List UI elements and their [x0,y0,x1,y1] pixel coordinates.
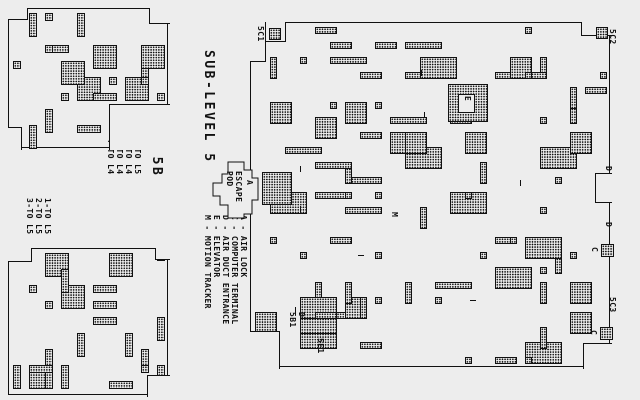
maze-block [405,132,427,154]
maze-block [555,177,562,184]
maze-block [360,132,382,139]
maze-block [435,282,472,289]
marker-computer-C1: C [590,247,599,252]
maze-block [330,237,352,244]
maze-block [570,252,577,259]
terminal-box-1 [601,244,614,257]
maze-block [45,109,53,133]
maze-block [77,125,101,133]
maze-block [375,252,382,259]
maze-block [29,365,53,373]
maze-block [345,282,352,304]
marker-motion-M: M [390,212,399,217]
marker-5C3: 5C3 [608,297,617,313]
maze-block [540,117,547,124]
maze-block [360,72,382,79]
marker-5C2: 5C2 [608,29,617,45]
maze-block [45,45,53,53]
legend-symbols: A - AIR LOCK C - COMPUTER TERMINAL D - A… [203,215,248,325]
maze-block [540,282,547,304]
maze-outline-notch [149,8,170,24]
maze-block [45,13,53,21]
maze-block [420,207,427,229]
duct-5b-maze [8,8,168,148]
duct-box-5C1 [269,28,281,40]
airlock-room [262,172,292,205]
maze-outline-notch [250,331,280,369]
maze-block [420,57,457,79]
maze-block [465,132,487,154]
maze-block [480,162,487,184]
maze-block [375,42,397,49]
maze-block [157,317,165,341]
maze-outline-notch [8,248,32,262]
maze-block [315,312,337,319]
maze-block [61,61,85,85]
marker-duct-D-1: D [604,166,613,171]
maze-block [510,237,517,244]
terminal-box-2 [600,327,613,340]
maze-block [13,61,21,69]
maze-block [375,297,382,304]
maze-block [93,93,117,101]
duct-box-5C2 [596,27,608,39]
maze-block [375,102,382,109]
maze-block [525,357,532,364]
maze-block [13,365,21,389]
maze-block [93,317,117,325]
maze-block [315,27,337,34]
maze-block [93,45,117,69]
door-tick [421,70,422,76]
page-title-sublevel-5: SUB-LEVEL 5 [201,50,215,164]
maze-block [270,237,277,244]
maze-outline-notch [583,343,612,369]
maze-block [29,13,37,37]
maze-block [345,207,382,214]
maze-block [157,93,165,101]
maze-outline-notch [595,173,612,203]
door-tick [424,112,425,118]
escape-pod-label: ESCAPE POD [225,171,243,202]
maze-block [345,102,367,124]
door-tick [300,166,301,172]
door-tick [358,255,364,256]
maze-block [570,132,592,154]
maze-block [61,93,69,101]
duct-5c-maze [8,248,168,395]
maze-block [300,252,307,259]
maze-block [405,42,442,49]
maze-block [61,269,69,293]
door-tick [295,307,296,313]
maze-block [525,237,562,259]
maze-block [435,297,442,304]
maze-block [405,282,412,304]
maze-block [109,381,133,389]
maze-outline-notch [8,8,28,20]
marker-computer-C2: C [589,330,598,335]
marker-airlock-A: A [245,180,254,185]
maze-block [570,282,592,304]
maze-block [125,333,133,357]
maze-block [315,162,352,169]
maze-block [360,297,367,319]
maze-block [109,77,117,85]
maze-block [93,301,117,309]
maze-block [390,117,427,124]
marker-duct-D-2: D [604,222,613,227]
maze-block [585,87,607,94]
door-tick [520,180,521,186]
maze-block [570,87,577,109]
door-tick [300,206,301,212]
marker-5C1: 5C1 [256,26,265,42]
maze-block [315,117,337,139]
maze-block [270,57,277,79]
maze-block [141,77,149,85]
marker-elevator-E: E [463,96,472,101]
maze-block [141,45,165,69]
maze-outline-notch [8,127,22,150]
maze-block [109,253,133,277]
marker-duct-5B1: D 5B1 [288,312,306,328]
maze-block [495,267,532,289]
maze-block [540,327,547,349]
map-page: SUB-LEVEL 5 DUCT 5B A - AIR LOCK C - COM… [0,0,640,400]
maze-block [525,72,532,79]
maze-block [345,192,352,199]
maze-block [141,365,149,373]
door-tick [470,300,476,301]
maze-block [77,13,85,37]
maze-block [330,42,352,49]
maze-block [285,147,322,154]
maze-block [300,57,307,64]
maze-block [270,102,292,124]
maze-block [525,27,532,34]
maze-block [61,365,69,389]
maze-block [330,57,367,64]
maze-outline-notch [147,375,170,397]
maze-block [29,125,37,149]
maze-block [465,357,472,364]
maze-block [540,207,547,214]
maze-block [29,285,37,293]
maze-block [600,72,607,79]
maze-block [375,192,382,199]
maze-block [93,285,117,293]
maze-block [360,342,382,349]
maze-block [495,357,517,364]
maze-outline-notch [155,248,170,260]
marker-5E1: 5E1 [316,338,325,354]
maze-block [45,301,53,309]
maze-block [465,192,472,199]
maze-block [330,102,337,109]
legend-duct-5c-exits: 1-TO L5 2-TO L5 3-TO L5 [25,198,52,235]
maze-outline-notch [109,104,170,150]
maze-block [77,333,85,357]
maze-block [540,267,547,274]
maze-block [480,252,487,259]
